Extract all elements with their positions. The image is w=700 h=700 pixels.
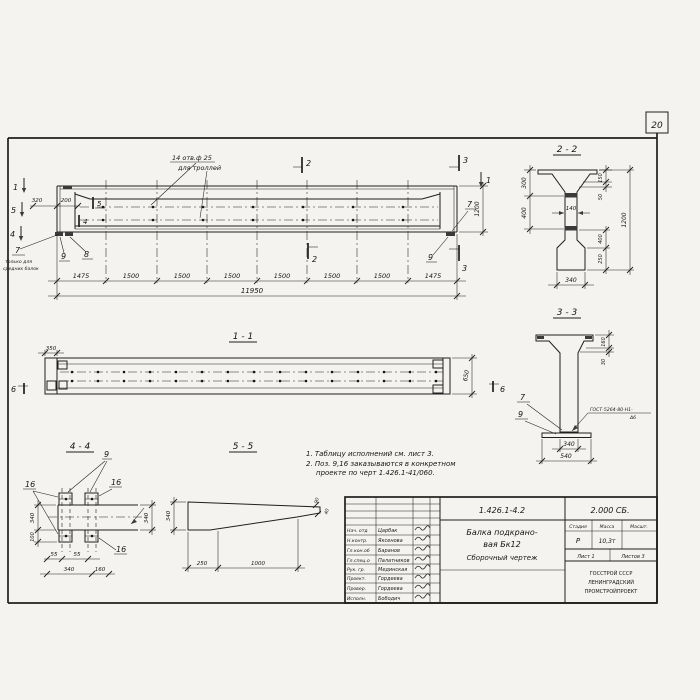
notes: 1. Таблицу исполнений см. лист 3. 2. Поз… (306, 450, 456, 477)
note-line2: 2. Поз. 9,16 заказываются в конкретном (306, 460, 456, 468)
cut-mark-3-bottom: 3 (462, 264, 467, 273)
dim-label: 340 (166, 510, 172, 521)
callout-16-left: 16 (25, 480, 35, 489)
dim-label-total: 11950 (241, 287, 264, 295)
section-mark-1: 1 (13, 183, 18, 192)
callout-9: 9 (61, 252, 66, 261)
dim-label: 340 (565, 277, 577, 284)
dim-label: 200 (61, 198, 72, 204)
cut-mark-6-left: 6 (11, 385, 16, 394)
dim-label: 1000 (251, 561, 265, 567)
dim-label: 340 (563, 441, 575, 448)
row-role: Провер. (347, 586, 366, 592)
callout-16-bottom: 16 (116, 545, 126, 554)
dim-label: 340 (64, 567, 75, 573)
dim-label: 400 (521, 207, 528, 219)
dim-label: 30 (601, 359, 607, 365)
dim-label: 1500 (123, 272, 140, 280)
dim-label: 160 (601, 337, 607, 347)
dim-label: 1500 (274, 272, 291, 280)
engineering-drawing-sheet: 20 (0, 0, 700, 700)
view-title: 2 - 2 (557, 145, 578, 155)
dim-label: 1500 (374, 272, 391, 280)
dim-label: 1500 (174, 272, 191, 280)
callout-7-note1: только для (5, 260, 32, 265)
cut-mark-5-inner: 5 (97, 200, 102, 208)
drawing-title-line1: Балка подкрано- (466, 528, 537, 537)
dim-label: 1475 (73, 272, 90, 280)
row-name: Гордеева (378, 576, 403, 582)
row-name: Мединская (378, 567, 407, 573)
dim-label: 400 (598, 234, 604, 244)
doc-suffix: 2.000 СБ. (590, 506, 629, 515)
cut-mark-2-bottom: 2 (312, 255, 317, 264)
row-name: Яксенова (377, 538, 403, 544)
cut-mark-2-top: 2 (306, 159, 311, 168)
dim-label: 340 (144, 512, 150, 523)
dim-label: 1500 (324, 272, 341, 280)
sheet-label: Лист 1 (576, 554, 594, 560)
dim-label: 320 (32, 198, 43, 204)
dim-label: 1500 (224, 272, 241, 280)
drawing-title-line3: Сборочный чертеж (467, 554, 538, 562)
row-name: Царбак (378, 528, 397, 534)
row-role: Гл.спец.о (347, 558, 370, 564)
row-role: Исполн. (347, 596, 366, 602)
view-title: 3 - 3 (557, 308, 578, 318)
dim-label: 540 (560, 453, 572, 460)
section-mark-1-right: 1 (486, 176, 491, 185)
row-role: Нач. отд (347, 528, 368, 534)
view-title: 4 - 4 (70, 442, 91, 452)
row-name: Баранов (378, 548, 400, 554)
value-mass: 10,3т (599, 538, 616, 545)
dim-label: 340 (30, 512, 36, 523)
header-scale: Масшт. (630, 524, 648, 530)
doc-number: 1.426.1-4.2 (479, 506, 525, 515)
dim-label: 1475 (425, 272, 442, 280)
row-role: Рук. гр. (347, 567, 365, 573)
dim-label: 55 (74, 552, 81, 558)
dim-label: 55 (51, 552, 58, 558)
org-line3: ПРОМСТРОЙПРОЕКТ (585, 588, 639, 595)
row-name: Гордеева (378, 586, 403, 592)
page-number: 20 (651, 121, 663, 131)
dim-label: 140 (566, 206, 577, 212)
dim-label: 50 (598, 194, 604, 200)
row-role: Проект. (347, 576, 366, 582)
row-role: Гл.кон.об (347, 548, 370, 554)
org-line2: ЛЕНИНГРАДСКИЙ (588, 579, 634, 586)
dim-label: 160 (95, 567, 106, 573)
callout-9: 9 (518, 410, 523, 419)
view-title: 1 - 1 (233, 332, 253, 342)
paper-background (0, 0, 700, 700)
weld-note-line1: ГОСТ-5264-80-Н1- (590, 407, 633, 413)
cut-mark-3-top: 3 (463, 156, 468, 165)
section-mark-4: 4 (10, 230, 15, 239)
view-title: 5 - 5 (233, 442, 254, 452)
row-name: Бободич (378, 596, 400, 602)
header-stage: Стадия (569, 524, 587, 530)
org-line1: ГОССТРОЙ СССР (590, 570, 633, 577)
dim-label: 250 (197, 561, 208, 567)
sheets-label: Листов 3 (620, 554, 644, 560)
section-mark-5: 5 (11, 206, 16, 215)
note-line3: проекте по черт 1.426.1-41/060. (316, 469, 435, 477)
header-mass: Масса (600, 524, 615, 530)
hole-note-line1: 14 отв.ф 25 (172, 154, 212, 162)
weld-note-line2: Δ6 (629, 415, 636, 421)
cut-mark-6-right: 6 (500, 385, 505, 394)
dim-label: 300 (521, 177, 528, 189)
hole-note-line2: для троллей (177, 164, 221, 172)
dim-label: 150 (598, 173, 604, 183)
callout-16-right: 16 (111, 478, 121, 487)
callout-9: 9 (104, 450, 109, 459)
drawing-title-line2: вая Бк12 (483, 540, 520, 549)
callout-7-note2: средних балок (3, 266, 39, 272)
cut-mark-4-inner: 4 (83, 218, 87, 226)
row-role: Н.контр. (347, 538, 368, 544)
dim-label: 1200 (621, 212, 628, 227)
dim-label: 350 (46, 346, 57, 352)
note-line1: 1. Таблицу исполнений см. лист 3. (306, 450, 434, 458)
callout-8: 8 (84, 250, 89, 259)
row-name: Палатников (378, 558, 410, 564)
dim-label: 250 (598, 254, 604, 264)
dim-label: 100 (30, 532, 36, 542)
callout-9-right: 9 (428, 253, 433, 262)
